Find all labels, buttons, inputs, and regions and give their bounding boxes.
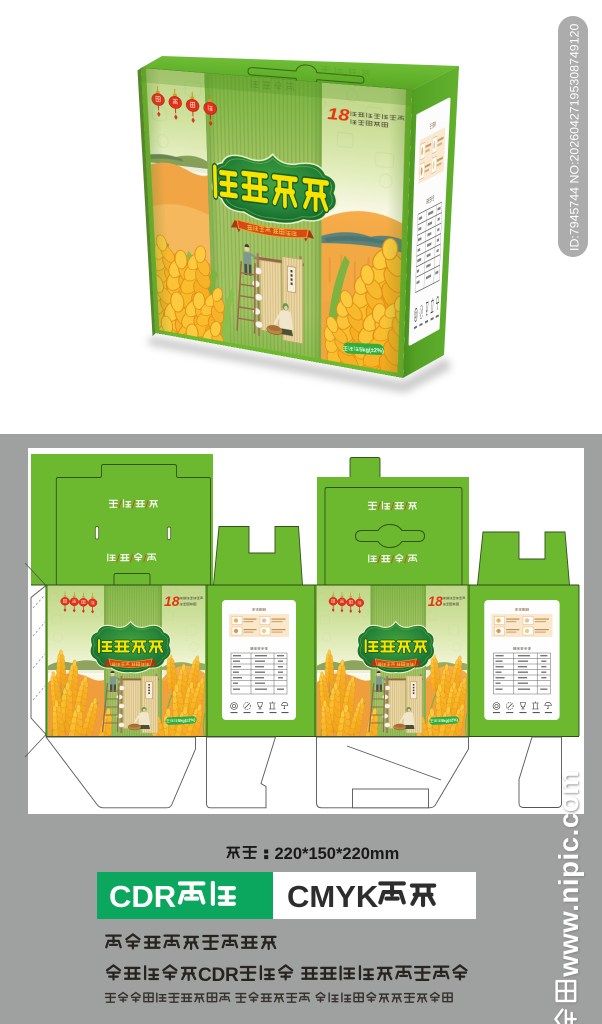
svg-text:CDR: CDR	[109, 879, 176, 914]
svg-text:ID:7945744 NO:2026042719530874: ID:7945744 NO:20260427195308749120	[567, 24, 581, 251]
svg-text:CDR: CDR	[198, 965, 239, 986]
svg-text:220*150*220mm: 220*150*220mm	[275, 845, 400, 863]
svg-text:CMYK: CMYK	[287, 879, 379, 914]
svg-text:www.nipic.com: www.nipic.com	[553, 770, 584, 978]
